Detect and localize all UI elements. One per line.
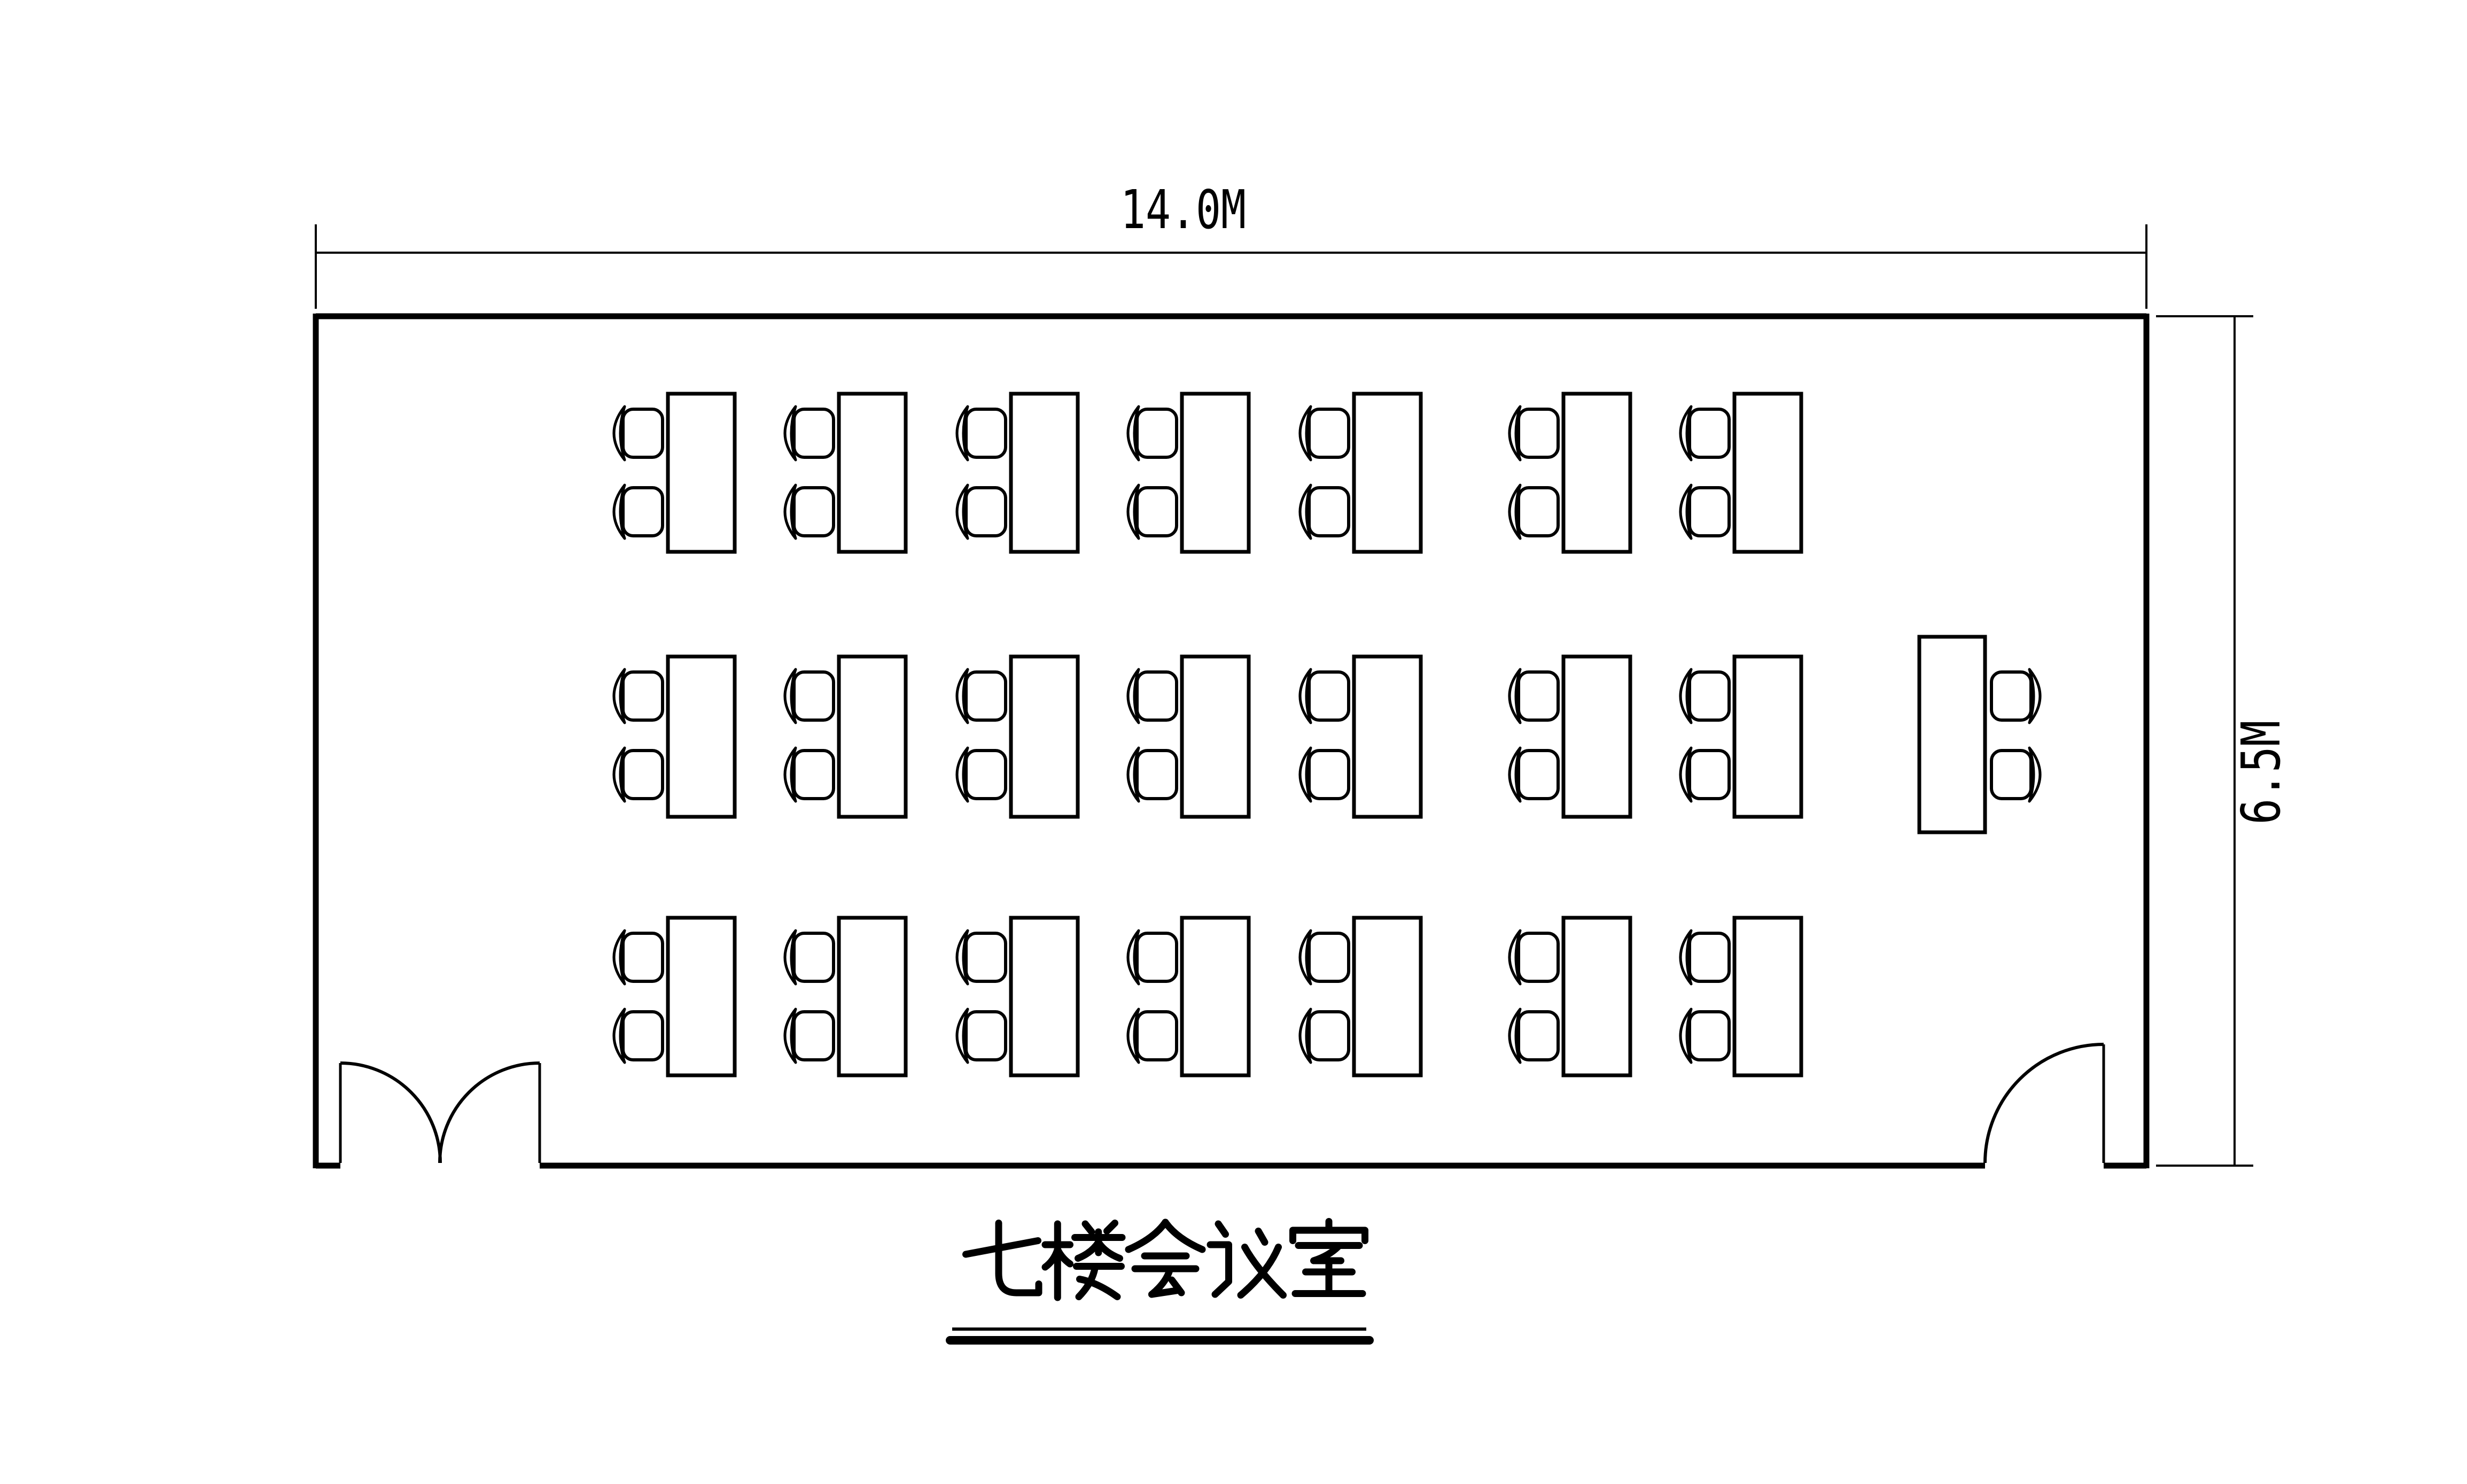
chair-seat: [1690, 672, 1729, 720]
single-door-right: [1985, 1044, 2104, 1163]
desk-table: [1919, 637, 1985, 832]
chair-seat: [1519, 933, 1558, 981]
chair-seat: [1137, 751, 1177, 799]
desk-table: [668, 657, 735, 817]
width-dimension-label: 14.0M: [1120, 178, 1246, 241]
desk-table: [668, 918, 735, 1075]
chair-seat: [623, 1012, 663, 1060]
desk-table: [839, 657, 906, 817]
chair-seat: [794, 409, 834, 457]
desk-table: [1354, 657, 1421, 817]
door-swing-arc: [340, 1063, 440, 1163]
height-dimension-label: 6.5M: [2230, 721, 2292, 825]
student-desk: [614, 657, 735, 817]
chair-seat: [623, 488, 663, 536]
chair-seat: [623, 933, 663, 981]
chair-seat: [1309, 488, 1349, 536]
chair-seat: [966, 1012, 1006, 1060]
door-swing-arc: [1985, 1044, 2104, 1163]
chair-seat: [1690, 488, 1729, 536]
door-swing-arc: [440, 1063, 540, 1163]
chair-seat: [1519, 409, 1558, 457]
chair-seat: [1309, 409, 1349, 457]
chair-seat: [1137, 409, 1177, 457]
chair-seat: [623, 409, 663, 457]
chair-seat: [1137, 1012, 1177, 1060]
floor-plan-page: 14.0M 6.5M 七楼会议室: [0, 0, 2467, 1484]
chair-seat: [966, 672, 1006, 720]
student-desk: [1509, 394, 1630, 552]
chair-seat: [1309, 1012, 1349, 1060]
desk-table: [1011, 918, 1078, 1075]
desk-table: [1182, 394, 1249, 552]
student-desk: [957, 394, 1078, 552]
chair-seat: [1519, 672, 1558, 720]
chair-seat: [966, 751, 1006, 799]
desk-table: [1354, 918, 1421, 1075]
floor-plan-drawing: 14.0M 6.5M 七楼会议室: [0, 0, 2467, 1484]
student-desk: [785, 918, 906, 1075]
chair-seat: [1309, 751, 1349, 799]
student-desk: [1509, 918, 1630, 1075]
desk-table: [1734, 918, 1801, 1075]
chair-seat: [623, 751, 663, 799]
chair-seat: [966, 409, 1006, 457]
desk-table: [1563, 394, 1630, 552]
student-desk: [614, 394, 735, 552]
chair-seat: [966, 933, 1006, 981]
double-door-left: [340, 1063, 540, 1163]
desk-table: [1182, 657, 1249, 817]
student-desk: [1680, 657, 1801, 817]
student-desk: [957, 918, 1078, 1075]
chair-seat: [1690, 751, 1729, 799]
desk-table: [1011, 657, 1078, 817]
desk-table: [1354, 394, 1421, 552]
desk-table: [1734, 394, 1801, 552]
student-desk: [1300, 918, 1421, 1075]
student-desk: [1680, 918, 1801, 1075]
chair-seat: [1690, 933, 1729, 981]
chair-seat: [794, 751, 834, 799]
student-desk: [1300, 657, 1421, 817]
student-desk: [1128, 394, 1249, 552]
chair-seat: [1137, 672, 1177, 720]
student-desk: [785, 657, 906, 817]
chair-seat: [1991, 751, 2031, 799]
chair-seat: [1519, 1012, 1558, 1060]
chair-seat: [794, 672, 834, 720]
desk-table: [839, 918, 906, 1075]
desk-table: [1182, 918, 1249, 1075]
chair-seat: [794, 933, 834, 981]
chair-seat: [1991, 672, 2031, 720]
student-desk: [1128, 918, 1249, 1075]
student-desk: [1680, 394, 1801, 552]
plan-geometry: [316, 224, 2253, 1340]
desk-table: [1563, 918, 1630, 1075]
student-desk: [614, 918, 735, 1075]
student-desk: [957, 657, 1078, 817]
chair-seat: [1519, 751, 1558, 799]
desk-table: [1734, 657, 1801, 817]
character-stroke: [1152, 1291, 1179, 1295]
chair-seat: [1137, 488, 1177, 536]
student-desk: [1300, 394, 1421, 552]
chair-seat: [1690, 409, 1729, 457]
student-desks: [614, 394, 1801, 1075]
student-desk: [785, 394, 906, 552]
chair-seat: [966, 488, 1006, 536]
chair-seat: [1690, 1012, 1729, 1060]
student-desk: [1128, 657, 1249, 817]
chair-seat: [794, 488, 834, 536]
desk-table: [668, 394, 735, 552]
desk-table: [1011, 394, 1078, 552]
chair-seat: [623, 672, 663, 720]
desk-table: [1563, 657, 1630, 817]
chair-seat: [1309, 672, 1349, 720]
student-desk: [1509, 657, 1630, 817]
title-underlines: [950, 1329, 1369, 1340]
chair-seat: [1519, 488, 1558, 536]
head-desk: [1919, 637, 2040, 832]
chair-seat: [1309, 933, 1349, 981]
chair-seat: [1137, 933, 1177, 981]
chair-seat: [794, 1012, 834, 1060]
desk-table: [839, 394, 906, 552]
